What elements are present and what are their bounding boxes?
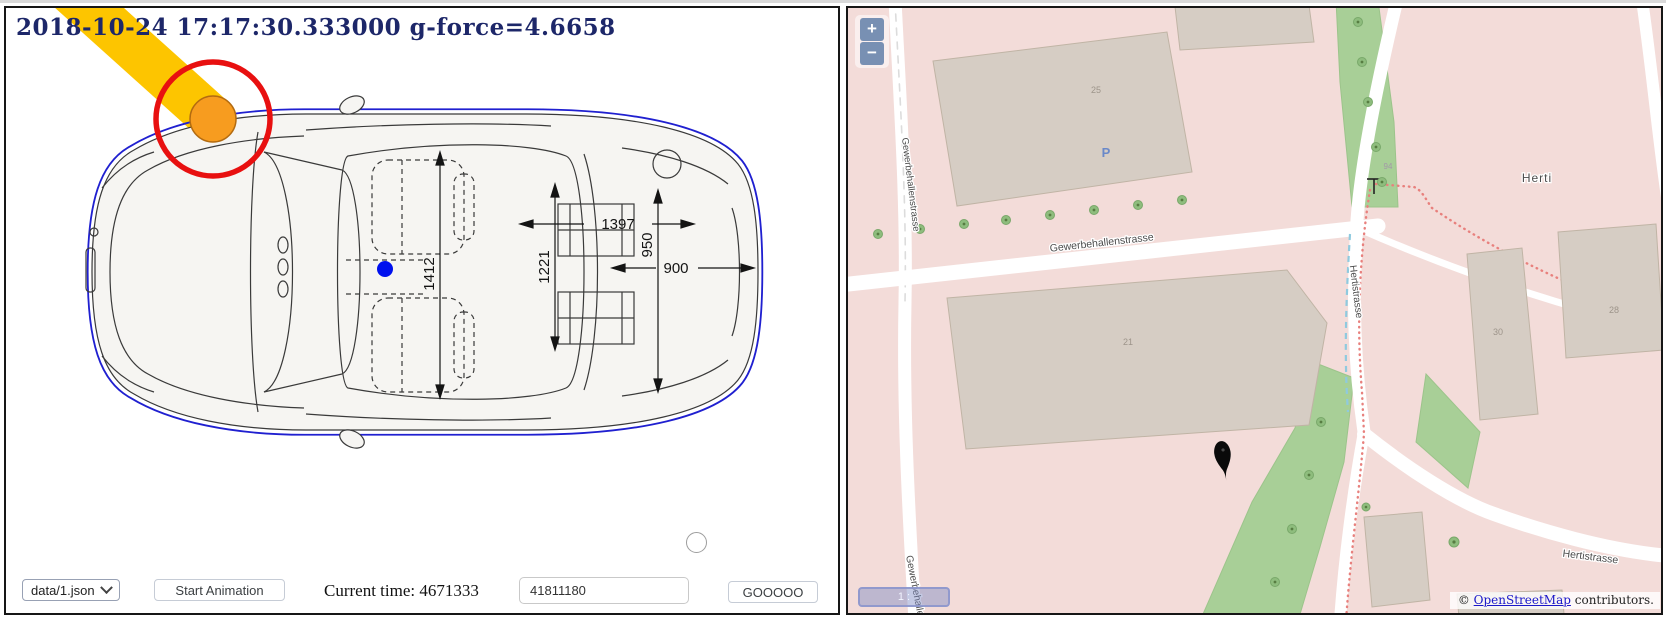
building-label-28: 28 bbox=[1609, 305, 1619, 315]
data-file-select-value: data/1.json bbox=[31, 583, 95, 598]
building-label-30: 30 bbox=[1493, 327, 1503, 337]
current-time-label: Current time: 4671333 bbox=[324, 581, 479, 601]
app-window: 2018-10-24 17:17:30.333000 g-force=4.665… bbox=[0, 0, 1666, 619]
map-panel: 25 21 30 28 94 bbox=[846, 6, 1663, 615]
impact-dot bbox=[190, 96, 236, 142]
position-dot bbox=[377, 261, 393, 277]
map-canvas[interactable]: 25 21 30 28 94 bbox=[848, 8, 1661, 613]
car-diagram: 1412 1221 1397 950 900 bbox=[6, 8, 838, 613]
chevron-down-icon bbox=[100, 581, 113, 594]
time-input[interactable] bbox=[519, 577, 689, 604]
scale-line: 1 : bbox=[858, 587, 950, 607]
parking-icon: P bbox=[1102, 145, 1111, 160]
car-panel: 2018-10-24 17:17:30.333000 g-force=4.665… bbox=[4, 6, 840, 615]
timestamp-gforce-title: 2018-10-24 17:17:30.333000 g-force=4.665… bbox=[16, 14, 616, 41]
copyright-symbol: © bbox=[1458, 593, 1470, 607]
start-animation-button[interactable]: Start Animation bbox=[154, 579, 285, 601]
data-file-select[interactable]: data/1.json bbox=[22, 579, 120, 601]
dim-label-1221: 1221 bbox=[536, 250, 553, 283]
dim-label-950: 950 bbox=[639, 232, 656, 257]
go-button[interactable]: GOOOOO bbox=[728, 581, 818, 603]
zoom-control: + − bbox=[855, 15, 889, 68]
openstreetmap-link[interactable]: OpenStreetMap bbox=[1474, 593, 1571, 607]
zoom-in-button[interactable]: + bbox=[860, 18, 884, 41]
dim-label-900: 900 bbox=[663, 260, 688, 277]
attribution-suffix: contributors. bbox=[1571, 593, 1654, 607]
map-attribution: © OpenStreetMap contributors. bbox=[1450, 592, 1660, 609]
building-label-25: 25 bbox=[1091, 85, 1101, 95]
dim-label-1397: 1397 bbox=[601, 216, 634, 233]
dim-label-1412: 1412 bbox=[421, 257, 438, 290]
zoom-out-button[interactable]: − bbox=[860, 42, 884, 65]
green-label-94: 94 bbox=[1384, 162, 1393, 171]
radio-button[interactable] bbox=[686, 532, 707, 553]
building-label-21: 21 bbox=[1123, 337, 1133, 347]
district-label-herti: Herti bbox=[1522, 171, 1552, 185]
